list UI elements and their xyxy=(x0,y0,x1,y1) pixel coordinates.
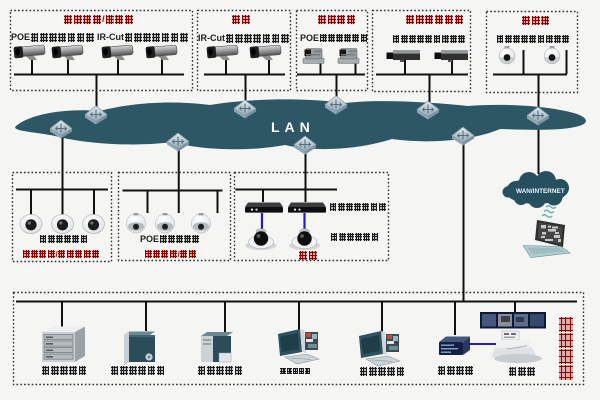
svg-text:WAN/INTERNET: WAN/INTERNET xyxy=(516,188,565,195)
svg-text:LAN: LAN xyxy=(271,119,315,135)
